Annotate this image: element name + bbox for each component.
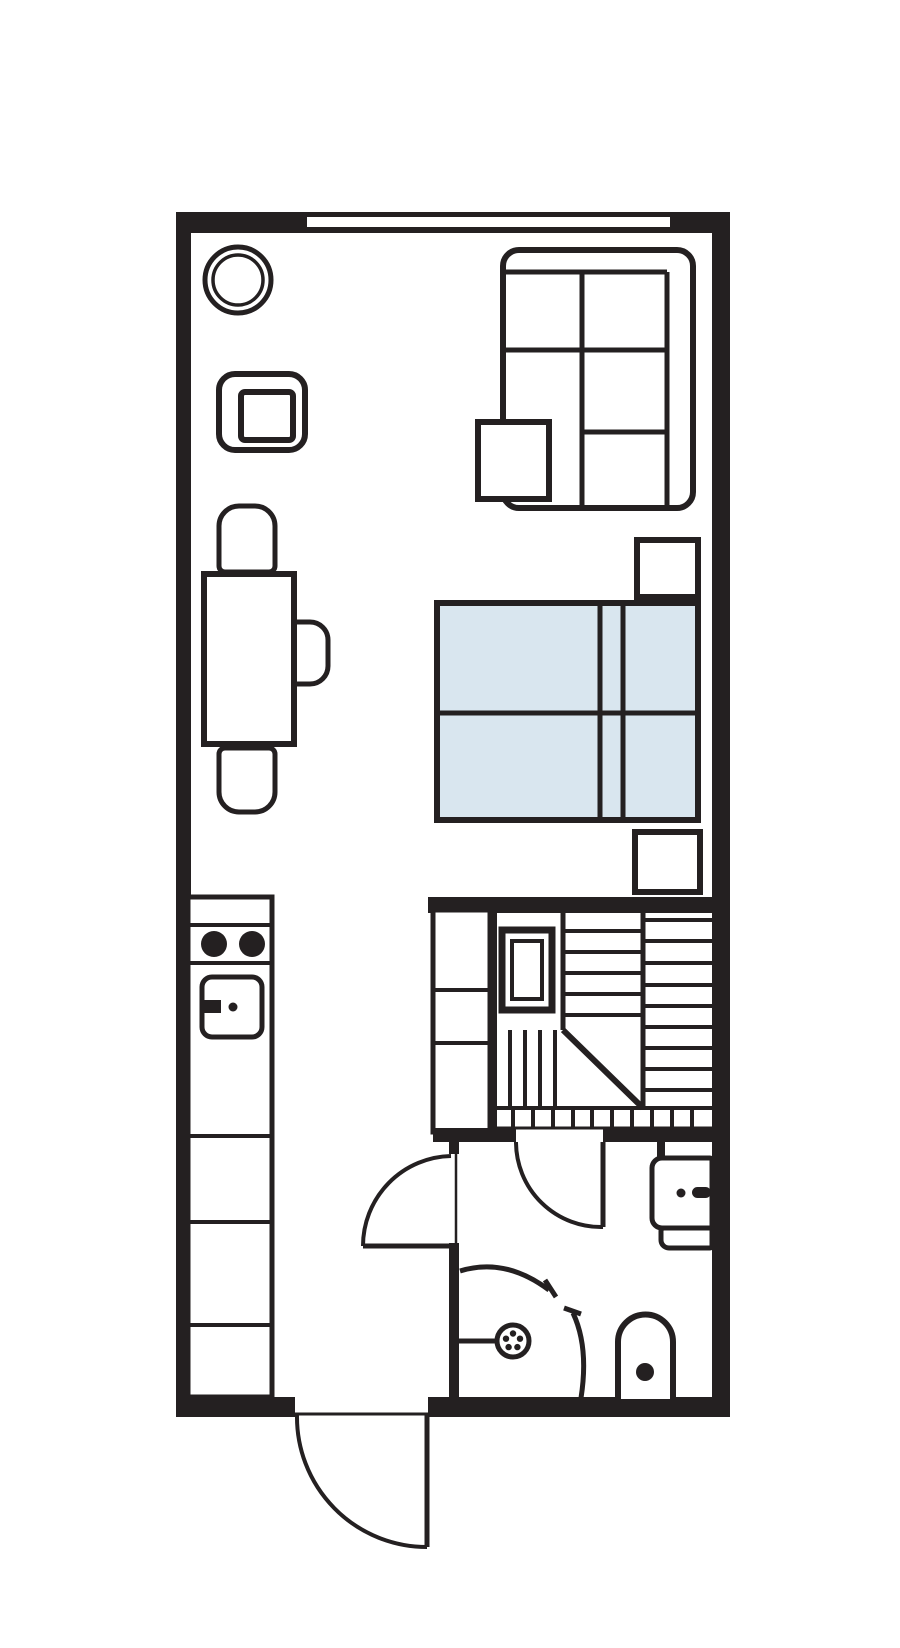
shower-screen-tick-2 (564, 1308, 581, 1314)
wall-bottom-right (428, 1397, 730, 1417)
toilet-drain (636, 1363, 654, 1381)
bathroom-door-arc (516, 1142, 603, 1227)
wall-bottom-left (176, 1397, 295, 1417)
sink-drain (229, 1003, 238, 1012)
closet (433, 910, 490, 1132)
wall-closet-right (488, 903, 497, 1132)
stairs-winder-line (563, 1030, 643, 1108)
basin-drain (677, 1189, 686, 1198)
stairs-landing-ticks (513, 1108, 692, 1128)
dining-chair-right (294, 622, 328, 684)
floor-plan-page (0, 0, 900, 1648)
wall-stairs-bottom-left (433, 1128, 516, 1142)
shower-screen-arc-1 (460, 1267, 549, 1290)
nightstand-bottom (635, 832, 700, 892)
basin-shelf (661, 1228, 712, 1248)
floor-plan (0, 0, 900, 1648)
dining-chair-bottom (219, 748, 275, 812)
coffee-table (478, 422, 549, 499)
dining-table (204, 574, 294, 744)
sink-faucet (203, 1000, 221, 1013)
wall-right (712, 212, 730, 1417)
hall-door-arc (363, 1156, 451, 1246)
shower-screen-arc-2 (573, 1313, 584, 1398)
stove-burner-left (201, 931, 227, 957)
stove-burner-right (239, 931, 265, 957)
stairs-lower-treads (510, 1030, 555, 1107)
basin-faucet (692, 1187, 711, 1198)
entry-door-arc (297, 1415, 427, 1547)
round-table-outer (205, 247, 271, 313)
shower-head (497, 1325, 529, 1357)
stairs-right-treads (643, 920, 712, 1090)
nightstand-top (637, 540, 698, 597)
wall-stairs-bottom-right (603, 1128, 712, 1142)
stairs-upper-treads (563, 931, 643, 1015)
window-top (307, 217, 670, 227)
kitchen-counter (188, 897, 272, 1397)
toilet (618, 1315, 673, 1400)
dining-chair-top (219, 506, 275, 572)
wall-hall-lower (449, 1243, 459, 1399)
wall-hall-stub (449, 1140, 459, 1154)
